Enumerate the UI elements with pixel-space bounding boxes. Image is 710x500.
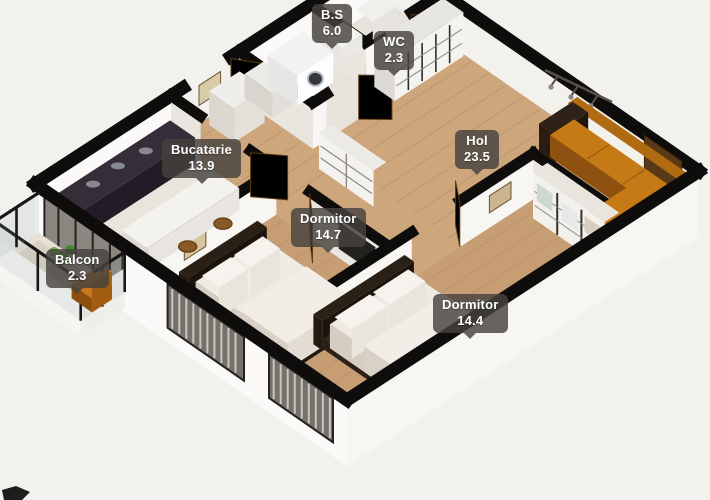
kitchen-appliance bbox=[86, 181, 100, 188]
wall-bs-bottom-a-top bbox=[313, 94, 327, 103]
room-name: WC bbox=[383, 34, 405, 50]
track-light-bulb bbox=[568, 94, 573, 99]
room-name: Hol bbox=[464, 133, 490, 149]
room-name: Bucatarie bbox=[171, 142, 232, 158]
bar-stool bbox=[214, 218, 232, 229]
room-name: B.S bbox=[321, 7, 343, 23]
room-label-balcon: Balcon 2.3 bbox=[46, 249, 109, 288]
kitchen-appliance bbox=[111, 162, 125, 169]
room-name: Balcon bbox=[55, 252, 100, 268]
room-label-hol: Hol 23.5 bbox=[455, 130, 499, 169]
room-label-dormitor-1: Dormitor 14.7 bbox=[291, 208, 366, 247]
room-label-wc: WC 2.3 bbox=[374, 31, 414, 70]
room-area: 23.5 bbox=[464, 149, 490, 165]
washing-machine-door bbox=[308, 72, 323, 86]
room-area: 13.9 bbox=[171, 158, 232, 174]
kitchen-appliance bbox=[139, 147, 153, 154]
room-area: 14.4 bbox=[442, 313, 499, 329]
room-label-bucatarie: Bucatarie 13.9 bbox=[162, 139, 241, 178]
track-light-bulb bbox=[548, 84, 553, 89]
room-area: 14.7 bbox=[300, 227, 357, 243]
room-name: Dormitor bbox=[300, 211, 357, 227]
room-area: 2.3 bbox=[383, 50, 405, 66]
floorplan-image: B.S 6.0 WC 2.3 Bucatarie 13.9 Hol 23.5 D… bbox=[0, 0, 710, 500]
kitchen-door bbox=[251, 153, 288, 200]
room-area: 6.0 bbox=[321, 23, 343, 39]
room-name: Dormitor bbox=[442, 297, 499, 313]
room-area: 2.3 bbox=[55, 268, 100, 284]
bar-stool bbox=[179, 241, 197, 252]
room-label-dormitor-2: Dormitor 14.4 bbox=[433, 294, 508, 333]
room-label-bs: B.S 6.0 bbox=[312, 4, 352, 43]
